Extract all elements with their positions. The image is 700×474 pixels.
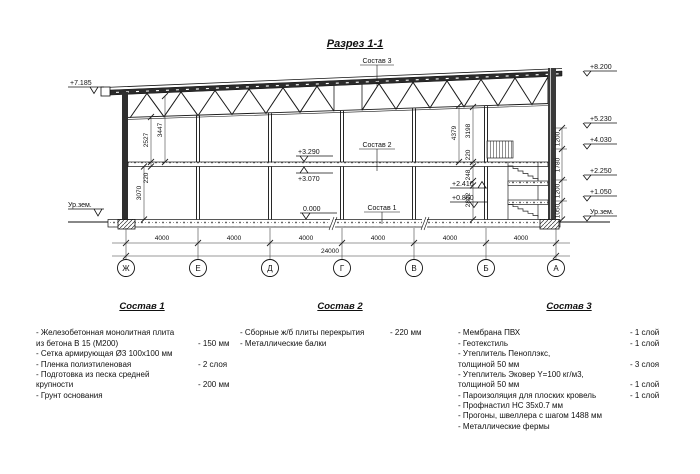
stair-flight-upper xyxy=(508,166,538,181)
elev-slab-top: +3.290 xyxy=(298,149,320,156)
list-item: - Металлические фермы xyxy=(458,422,680,432)
composition-2-heading: Состав 2 xyxy=(240,301,440,313)
stair-flight-lower xyxy=(508,205,538,218)
item-text: - Металлические балки xyxy=(240,339,386,349)
dim-bay: 4000 xyxy=(299,235,314,242)
stair-landing-lower xyxy=(508,200,548,205)
dim-right: 1200 xyxy=(555,131,562,146)
axis-label: Г xyxy=(340,264,345,273)
axis-label: Б xyxy=(483,264,488,273)
list-item: - Сборные ж/б плиты перекрытия - 220 мм xyxy=(240,328,440,338)
elev-left-ground: Ур.зем. xyxy=(68,202,92,209)
item-text: - Профнастил НС 35х0.7 мм xyxy=(458,401,626,411)
composition-3: Состав 3 - Мембрана ПВХ - 1 слой - Геоте… xyxy=(458,301,680,432)
item-text: - Пленка полиэтиленовая xyxy=(36,360,194,370)
list-item: - Металлические балки xyxy=(240,339,440,349)
item-text: - Сборные ж/б плиты перекрытия xyxy=(240,328,386,338)
dim-bay: 4000 xyxy=(371,235,386,242)
list-item: - Геотекстиль - 1 слой xyxy=(458,339,680,349)
item-text: - Прогоны, швеллера с шагом 1488 мм xyxy=(458,411,626,421)
dim-bay: 4000 xyxy=(155,235,170,242)
item-value: - 1 слой xyxy=(626,391,680,401)
elev-slab-bottom: +3.070 xyxy=(298,176,320,183)
axis-label: Е xyxy=(195,264,200,273)
section-drawing: Ж Е Д Г В Б А Состав 3 Состав 2 Состав 1… xyxy=(0,0,700,292)
elev-right: +4.030 xyxy=(590,137,612,144)
elev-right: +2.250 xyxy=(590,168,612,175)
staircase xyxy=(487,141,548,220)
drawing-sheet: Разрез 1-1 xyxy=(0,0,700,474)
dim-inner: 220 xyxy=(465,149,472,160)
item-text: - Подготовка из песка средней крупности xyxy=(36,370,194,391)
list-item: - Грунт основания xyxy=(36,391,248,401)
dim-right: 1780 xyxy=(555,157,562,172)
item-text: - Мембрана ПВХ xyxy=(458,328,626,338)
item-value: - 3 слоя xyxy=(626,360,680,370)
roof-end-cap xyxy=(101,87,110,96)
sostav3-label: Состав 3 xyxy=(362,58,391,65)
item-value: - 200 мм xyxy=(194,380,248,390)
dim-bay: 4000 xyxy=(227,235,242,242)
item-text: - Пароизоляция для плоских кровель xyxy=(458,391,626,401)
list-item: - Утеплитель Пеноплэкс, толщиной 50 мм -… xyxy=(458,349,680,370)
elev-stair-upper: +2.410 xyxy=(452,181,474,188)
composition-2: Состав 2 - Сборные ж/б плиты перекрытия … xyxy=(240,301,440,349)
dim-left: 2527 xyxy=(143,132,150,147)
axis-label: Д xyxy=(267,264,273,273)
list-item: - Пленка полиэтиленовая - 2 слоя xyxy=(36,360,248,370)
item-text: - Железобетонная монолитная плита из бет… xyxy=(36,328,194,349)
dim-inner: 2822 xyxy=(465,192,472,207)
sostav1-label: Состав 1 xyxy=(367,205,396,212)
dim-inner: 4379 xyxy=(451,125,458,140)
axis-label: В xyxy=(411,264,416,273)
list-item: - Утеплитель Эковер Y=100 кг/м3, толщино… xyxy=(458,370,680,391)
dimension-lines xyxy=(112,96,570,260)
item-value: - 1 слой xyxy=(626,380,680,390)
dim-bay: 4000 xyxy=(443,235,458,242)
dim-left: 3070 xyxy=(136,185,143,200)
composition-3-heading: Состав 3 xyxy=(458,301,680,313)
dim-right: 1050 xyxy=(555,203,562,218)
dim-right: 1200 xyxy=(555,183,562,198)
dim-left: 3447 xyxy=(157,122,164,137)
dim-inner: 3198 xyxy=(465,123,472,138)
roof xyxy=(101,69,562,97)
item-text: - Утеплитель Эковер Y=100 кг/м3, толщино… xyxy=(458,370,626,391)
elev-right: +5.230 xyxy=(590,116,612,123)
axis-label: А xyxy=(553,264,559,273)
foundation-left xyxy=(118,220,135,230)
list-item: - Железобетонная монолитная плита из бет… xyxy=(36,328,248,349)
elev-right: Ур.зем. xyxy=(590,209,614,216)
elev-floor: 0.000 xyxy=(303,206,321,213)
foundation-right xyxy=(540,220,559,230)
list-item: - Мембрана ПВХ - 1 слой xyxy=(458,328,680,338)
item-value: - 2 слоя xyxy=(194,360,248,370)
sostav2-label: Состав 2 xyxy=(362,142,391,149)
item-text: - Металлические фермы xyxy=(458,422,626,432)
item-value: - 1 слой xyxy=(626,339,680,349)
item-text: - Сетка армирующая Ø3 100х100 мм xyxy=(36,349,194,359)
elev-right: +8.200 xyxy=(590,64,612,71)
stair-railing xyxy=(487,141,513,158)
dim-total: 24000 xyxy=(321,248,339,255)
stair-landing-upper xyxy=(508,181,548,186)
floor-slab xyxy=(108,217,560,230)
item-text: - Утеплитель Пеноплэкс, толщиной 50 мм xyxy=(458,349,626,370)
dim-bay: 4000 xyxy=(514,235,529,242)
axis-label: Ж xyxy=(122,264,130,273)
list-item: - Пароизоляция для плоских кровель - 1 с… xyxy=(458,391,680,401)
list-item: - Подготовка из песка средней крупности … xyxy=(36,370,248,391)
elev-right: +1.050 xyxy=(590,189,612,196)
item-value: - 220 мм xyxy=(386,328,440,338)
list-item: - Прогоны, швеллера с шагом 1488 мм xyxy=(458,411,680,421)
axis-bubbles: Ж Е Д Г В Б А xyxy=(118,260,565,277)
dim-left: 220 xyxy=(143,172,150,183)
item-text: - Геотекстиль xyxy=(458,339,626,349)
elev-left-top: +7.185 xyxy=(70,80,92,87)
item-text: - Грунт основания xyxy=(36,391,194,401)
left-wall xyxy=(122,92,128,220)
mid-floor-slab xyxy=(128,162,548,167)
item-value: - 1 слой xyxy=(626,328,680,338)
composition-1-heading: Состав 1 xyxy=(36,301,248,313)
list-item: - Профнастил НС 35х0.7 мм xyxy=(458,401,680,411)
dimension-ticks xyxy=(123,93,565,259)
list-item: - Сетка армирующая Ø3 100х100 мм xyxy=(36,349,248,359)
composition-1: Состав 1 - Железобетонная монолитная пли… xyxy=(36,301,248,401)
dim-inner: 248 xyxy=(465,169,472,180)
